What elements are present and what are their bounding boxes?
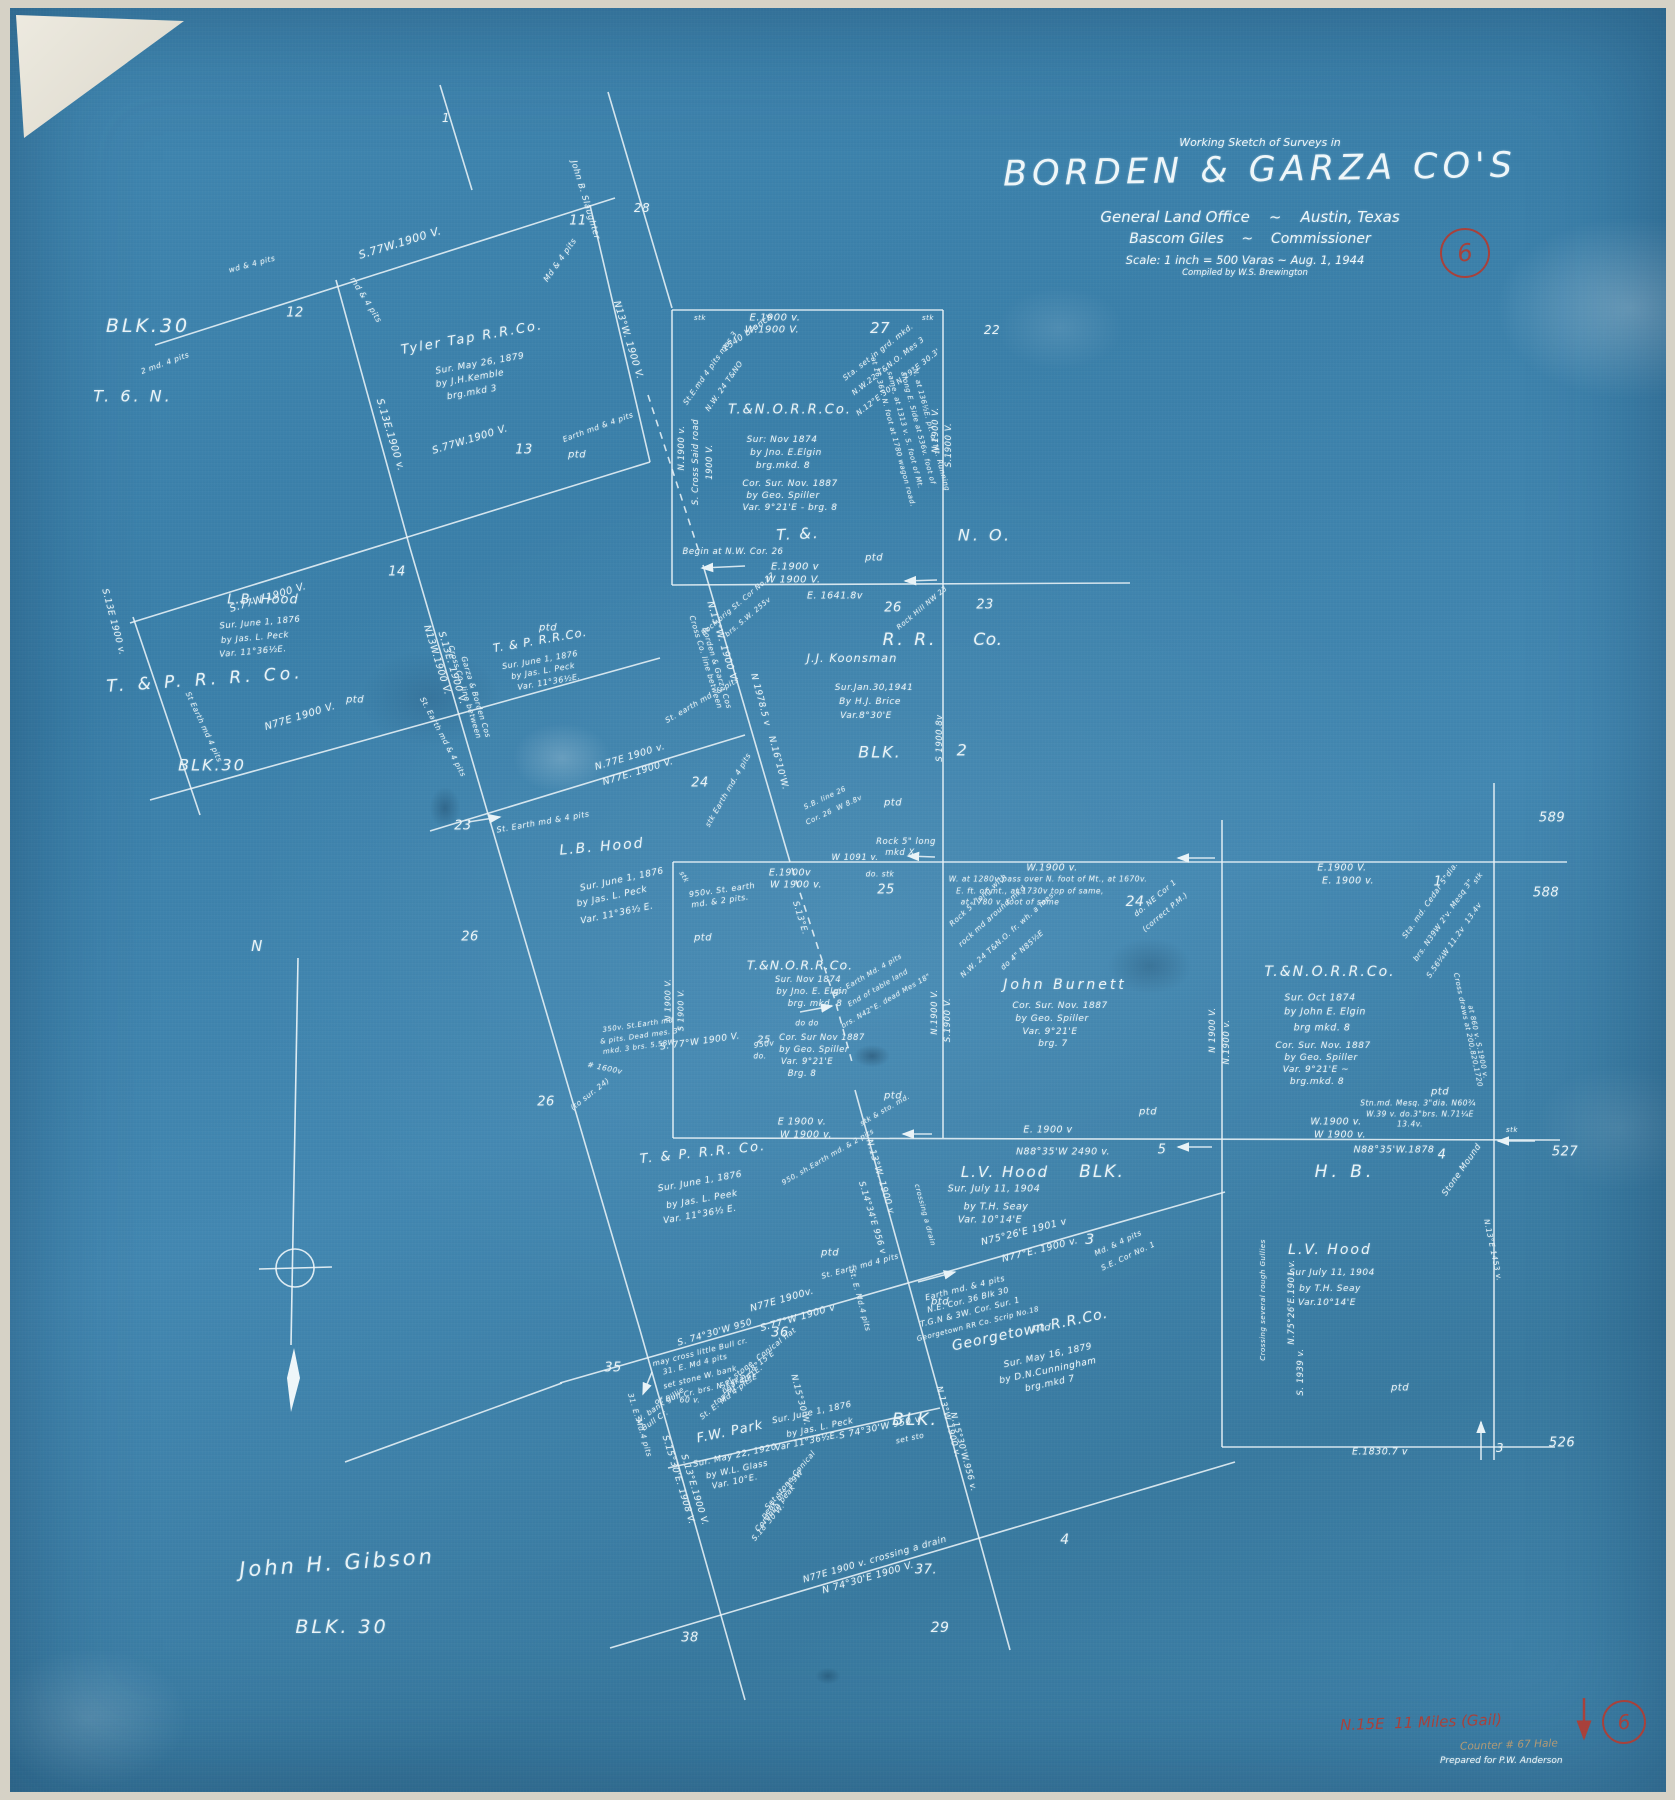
title-line1: General Land Office ~ Austin, Texas bbox=[1050, 208, 1450, 226]
blueprint-sheet bbox=[10, 8, 1666, 1792]
title-line2: Bascom Giles ~ Commissioner bbox=[1060, 231, 1440, 247]
title-compiled-by: Compiled by W.S. Brewington bbox=[1120, 268, 1370, 278]
sheet-number: 6 bbox=[1455, 238, 1474, 268]
prepared-for-note: Prepared for P.W. Anderson bbox=[1440, 1756, 1620, 1766]
sheet-number-bottom: 6 bbox=[1616, 1709, 1632, 1735]
blueprint-photo: 1111228S.77W.1900 V.md & 4 pitsMd & 4 pi… bbox=[0, 0, 1675, 1800]
title-kicker: Working Sketch of Surveys in bbox=[1110, 136, 1410, 149]
title-scale: Scale: 1 inch = 500 Varas ~ Aug. 1, 1944 bbox=[1080, 253, 1410, 267]
